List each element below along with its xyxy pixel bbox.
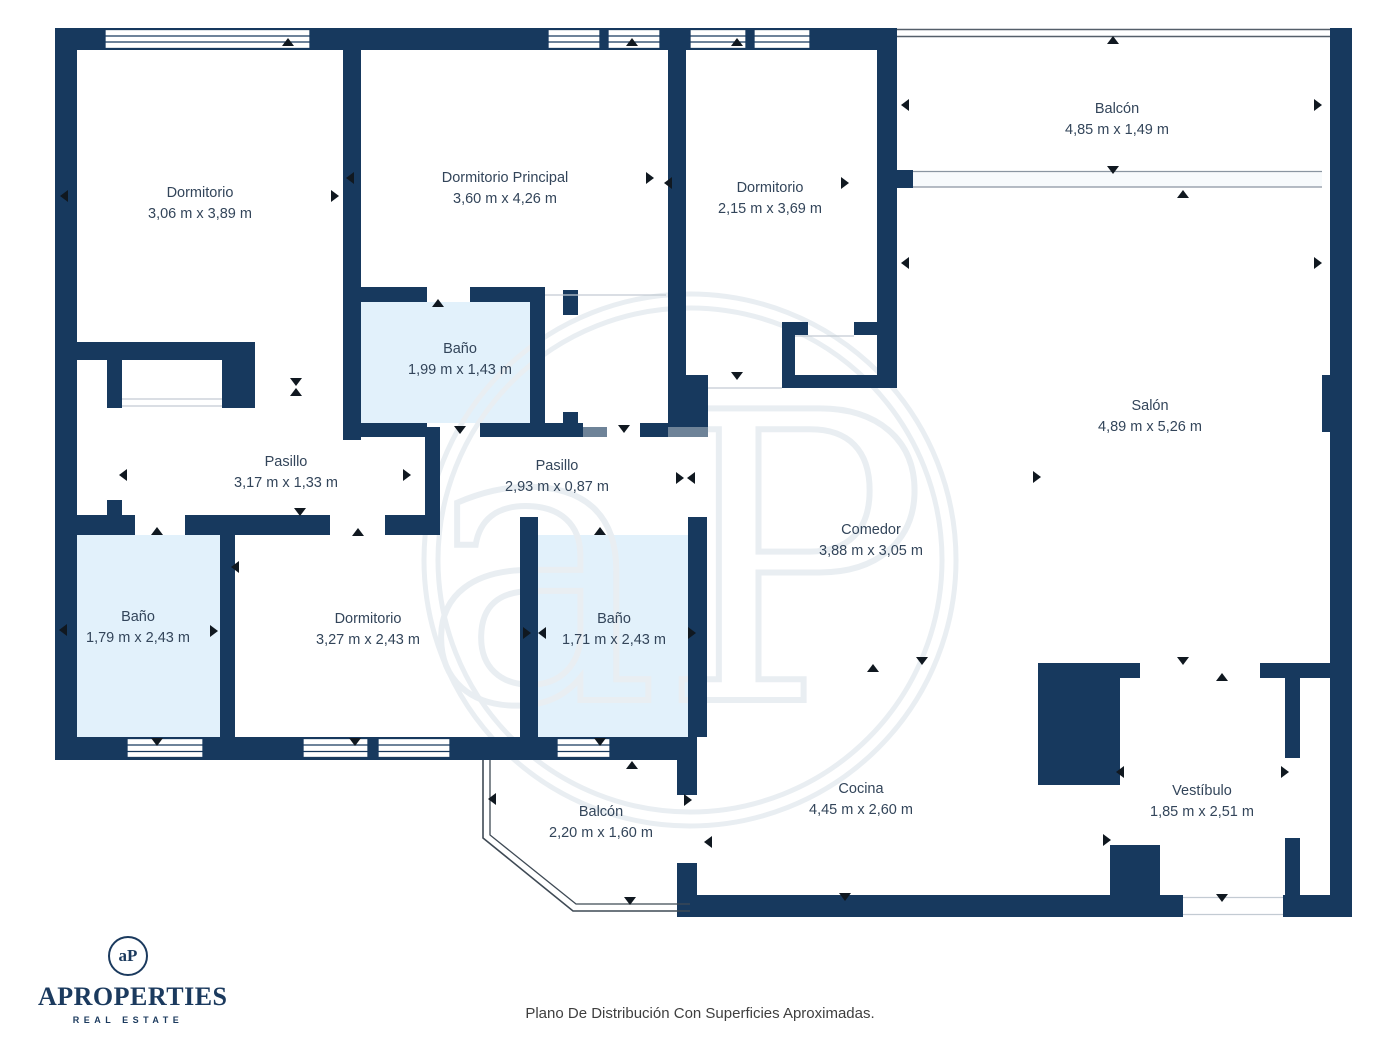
- room-label-vestibulo: Vestíbulo1,85 m x 2,51 m: [1150, 781, 1254, 823]
- room-name: Pasillo: [265, 454, 308, 470]
- room-dims: 3,60 m x 4,26 m: [442, 189, 569, 210]
- room-label-salon: Salón4,89 m x 5,26 m: [1098, 396, 1202, 438]
- room-name: Salón: [1131, 398, 1168, 414]
- room-label-cocina: Cocina4,45 m x 2,60 m: [809, 779, 913, 821]
- logo-tagline: REAL ESTATE: [38, 1015, 218, 1025]
- room-name: Baño: [443, 341, 477, 357]
- room-label-dormitorio-3: Dormitorio3,27 m x 2,43 m: [316, 609, 420, 651]
- room-name: Pasillo: [536, 458, 579, 474]
- room-dims: 1,85 m x 2,51 m: [1150, 802, 1254, 823]
- floor-plan-svg: aP: [0, 0, 1400, 1050]
- room-name: Dormitorio: [167, 185, 234, 201]
- room-label-balcon-superior: Balcón4,85 m x 1,49 m: [1065, 99, 1169, 141]
- logo-monogram: aP: [119, 946, 138, 966]
- room-dims: 3,27 m x 2,43 m: [316, 630, 420, 651]
- room-label-dormitorio-1: Dormitorio3,06 m x 3,89 m: [148, 183, 252, 225]
- floor-plan-stage: aP: [0, 0, 1400, 1050]
- room-dims: 1,71 m x 2,43 m: [562, 630, 666, 651]
- logo-name: APROPERTIES: [38, 982, 218, 1012]
- room-label-pasillo-1: Pasillo3,17 m x 1,33 m: [234, 452, 338, 494]
- room-dims: 2,20 m x 1,60 m: [549, 823, 653, 844]
- room-dims: 4,85 m x 1,49 m: [1065, 120, 1169, 141]
- room-dims: 2,15 m x 3,69 m: [718, 199, 822, 220]
- room-dims: 4,45 m x 2,60 m: [809, 800, 913, 821]
- room-name: Dormitorio: [335, 611, 402, 627]
- room-dims: 4,89 m x 5,26 m: [1098, 417, 1202, 438]
- logo-monogram-icon: aP: [108, 936, 148, 976]
- room-label-bano-2: Baño1,79 m x 2,43 m: [86, 607, 190, 649]
- room-name: Balcón: [579, 804, 623, 820]
- room-label-pasillo-2: Pasillo2,93 m x 0,87 m: [505, 456, 609, 498]
- room-dims: 3,06 m x 3,89 m: [148, 204, 252, 225]
- floor-plan-page: { "plan": { "rooms": [ {"id": "dormitori…: [0, 0, 1400, 1050]
- room-dims: 3,88 m x 3,05 m: [819, 541, 923, 562]
- room-dims: 1,99 m x 1,43 m: [408, 360, 512, 381]
- room-label-balcon-inferior: Balcón2,20 m x 1,60 m: [549, 802, 653, 844]
- agency-logo: aP APROPERTIES REAL ESTATE: [38, 936, 218, 1025]
- room-label-bano-1: Baño1,99 m x 1,43 m: [408, 339, 512, 381]
- room-name: Dormitorio Principal: [442, 170, 569, 186]
- room-name: Dormitorio: [737, 180, 804, 196]
- room-label-comedor: Comedor3,88 m x 3,05 m: [819, 520, 923, 562]
- room-dims: 1,79 m x 2,43 m: [86, 628, 190, 649]
- room-name: Balcón: [1095, 101, 1139, 117]
- room-dims: 3,17 m x 1,33 m: [234, 473, 338, 494]
- room-name: Comedor: [841, 522, 901, 538]
- room-label-bano-3: Baño1,71 m x 2,43 m: [562, 609, 666, 651]
- room-name: Vestíbulo: [1172, 783, 1232, 799]
- room-dims: 2,93 m x 0,87 m: [505, 477, 609, 498]
- room-name: Baño: [121, 609, 155, 625]
- room-label-dormitorio-principal: Dormitorio Principal3,60 m x 4,26 m: [442, 168, 569, 210]
- room-name: Cocina: [838, 781, 883, 797]
- room-name: Baño: [597, 611, 631, 627]
- room-label-dormitorio-2: Dormitorio2,15 m x 3,69 m: [718, 178, 822, 220]
- footer-caption: Plano De Distribución Con Superficies Ap…: [525, 1005, 874, 1022]
